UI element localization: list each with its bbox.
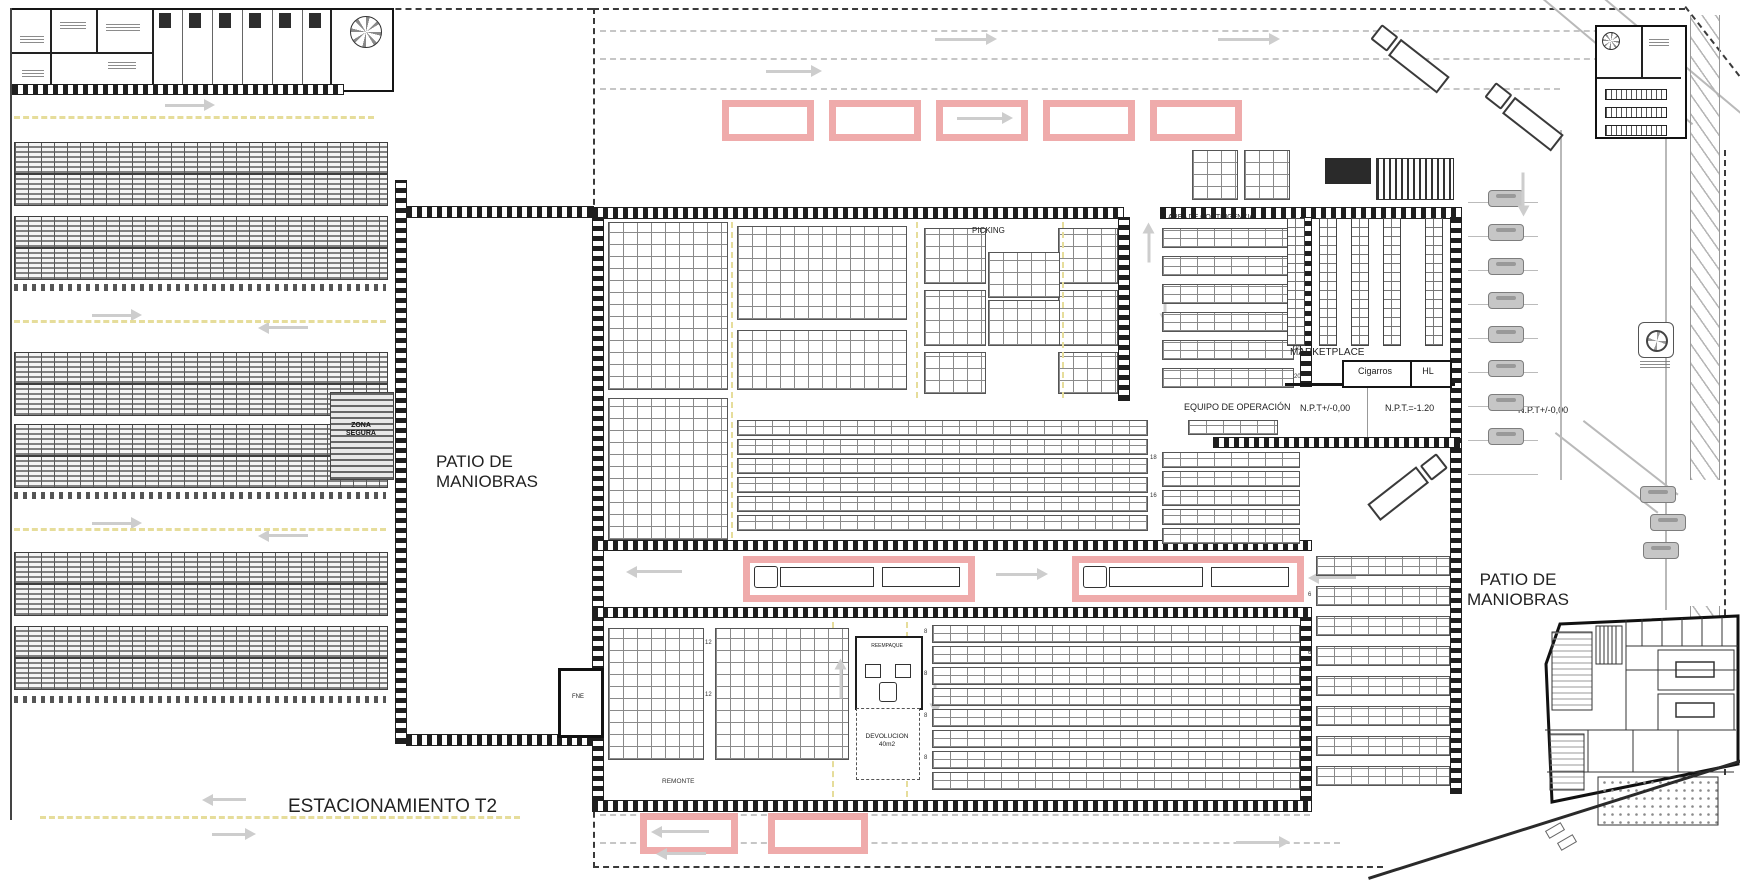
truck-bay-divider xyxy=(212,10,213,90)
fan-icon xyxy=(350,16,382,48)
lane-arrow-left xyxy=(268,534,308,537)
car-icon xyxy=(1488,326,1524,343)
picking-divider-wall xyxy=(1118,217,1130,401)
highlighted-truck-bay xyxy=(936,100,1028,141)
lane-arrow-right xyxy=(1218,38,1270,41)
yard-rack xyxy=(1244,150,1290,200)
cigarros-label: Cigarros xyxy=(1344,366,1406,377)
rack-capacity: 20 xyxy=(1294,374,1301,380)
room-microtext xyxy=(106,22,140,31)
car-icon xyxy=(1640,486,1676,503)
dock-wall-hatch xyxy=(1213,437,1460,448)
rack-row xyxy=(1316,766,1450,786)
room-wall xyxy=(50,10,52,90)
parking-row xyxy=(14,174,388,206)
picking-rack xyxy=(924,228,986,284)
lane-arrow-right xyxy=(957,117,1003,120)
picking-rack xyxy=(924,352,986,394)
room-microtext xyxy=(1649,39,1669,46)
room-furniture xyxy=(879,682,897,702)
marketplace-rack xyxy=(1319,218,1337,346)
aisle-arrow-up xyxy=(840,669,843,699)
rack-row xyxy=(1162,452,1300,468)
rack-block xyxy=(608,398,728,540)
road-lane-line xyxy=(600,88,1560,90)
room-wall xyxy=(96,10,98,52)
lane-arrow-right xyxy=(165,104,205,107)
lane-marking-yellow xyxy=(14,116,374,119)
lane-marking-yellow xyxy=(14,528,386,531)
parking-row xyxy=(14,142,388,174)
bay-door xyxy=(279,13,291,28)
truck-trailer xyxy=(780,567,874,587)
picking-rack xyxy=(988,300,1060,346)
lane-arrow-right xyxy=(92,314,132,317)
car-icon xyxy=(1488,224,1524,241)
truck-bay-divider xyxy=(242,10,243,90)
rack-row xyxy=(737,439,1148,455)
reempaque-label: REEMPAQUE xyxy=(858,644,916,650)
rack-row xyxy=(1162,490,1300,506)
rack-block xyxy=(737,226,907,320)
aisle-marking-yellow xyxy=(1062,222,1064,398)
rack-capacity: 6 xyxy=(1308,592,1311,598)
highlighted-truck-bay xyxy=(1043,100,1135,141)
truck-bay-divider xyxy=(302,10,303,90)
rack-row xyxy=(737,420,1148,436)
room-wall xyxy=(1641,27,1643,77)
truck-trailer xyxy=(1109,567,1203,587)
dock-edge-hatch xyxy=(12,84,344,95)
locker-bench xyxy=(1605,107,1667,118)
bay-door xyxy=(249,13,261,28)
lane-arrow-left xyxy=(268,326,308,329)
locker-bench xyxy=(1605,89,1667,100)
lane-arrow-right xyxy=(212,833,246,836)
bay-door xyxy=(309,13,321,28)
room-wall xyxy=(12,52,152,54)
room-furniture xyxy=(895,664,911,678)
rack-row xyxy=(1162,368,1294,388)
car-icon xyxy=(1650,514,1686,531)
rack-block xyxy=(737,330,907,390)
highlighted-truck-bay xyxy=(829,100,921,141)
equipment-row xyxy=(1188,420,1278,435)
aisle-arrow-up xyxy=(1148,233,1151,263)
picking-label: PICKING xyxy=(972,226,1005,235)
lot-boundary-ticks xyxy=(395,180,407,744)
aisle-marking-yellow xyxy=(916,222,918,398)
rack-row xyxy=(1316,646,1450,666)
truck-trailer xyxy=(1367,466,1429,521)
guard-circle-icon xyxy=(1646,330,1668,352)
room-wall xyxy=(1597,77,1681,79)
picking-rack xyxy=(988,252,1060,298)
car-icon xyxy=(1488,292,1524,309)
room-wall xyxy=(330,10,332,90)
picking-rack xyxy=(1058,228,1118,284)
rack-row xyxy=(932,709,1300,727)
bay-door xyxy=(219,13,231,28)
bay-door xyxy=(189,13,201,28)
rack-capacity: 16 xyxy=(1150,493,1157,499)
bay-door xyxy=(159,13,171,28)
connector-hatch xyxy=(406,206,594,218)
rack-row xyxy=(1162,528,1300,544)
rack-row xyxy=(932,625,1300,643)
car-icon xyxy=(1488,360,1524,377)
lot-divider-hatch xyxy=(14,696,386,703)
truck-trailer xyxy=(1211,567,1289,587)
rack-row xyxy=(1316,736,1450,756)
rack-row xyxy=(737,458,1148,474)
highlighted-truck-bay xyxy=(1150,100,1242,141)
room-microtext xyxy=(20,36,44,43)
guard-microtext xyxy=(1640,360,1670,368)
lane-arrow-left xyxy=(666,852,706,855)
road-lane-line xyxy=(600,30,1660,32)
lane-arrow-right xyxy=(766,70,812,73)
lane-arrow-right xyxy=(935,38,987,41)
room-furniture xyxy=(865,664,881,678)
car-icon xyxy=(1488,190,1524,207)
contingencia-label: AREA DE CONTINGENCIA xyxy=(1168,214,1254,222)
rack-row xyxy=(932,646,1300,664)
rack-row xyxy=(1316,616,1450,636)
warehouse-wall-top xyxy=(592,207,1124,219)
equipment-cabinet xyxy=(1325,158,1371,184)
lot-edge xyxy=(10,8,12,820)
rack-row xyxy=(737,477,1148,493)
rack-row xyxy=(1162,312,1294,332)
truck-trailer xyxy=(1388,39,1450,94)
npt-level-1: N.P.T+/-0,00 xyxy=(1300,403,1350,414)
parking-row xyxy=(14,658,388,690)
rack-capacity: 8 xyxy=(924,671,927,677)
rack-row xyxy=(1162,471,1300,487)
rack-row xyxy=(1162,284,1294,304)
rack-capacity: 12 xyxy=(705,692,712,698)
rack-row xyxy=(1316,556,1450,576)
npt-level-2: N.P.T.=-1.20 xyxy=(1385,403,1434,414)
parking-row xyxy=(14,584,388,616)
car-icon xyxy=(1643,542,1679,559)
parking-row xyxy=(14,248,388,280)
rack-capacity: 12 xyxy=(705,640,712,646)
parking-row xyxy=(14,552,388,584)
rack-row xyxy=(932,730,1300,748)
lot-divider-hatch xyxy=(14,492,386,499)
rack-row xyxy=(1162,509,1300,525)
aisle-marking-yellow xyxy=(731,222,733,538)
rack-row xyxy=(1162,256,1294,276)
rack-row xyxy=(1162,228,1294,248)
room-wall xyxy=(152,10,154,90)
lot-divider-hatch xyxy=(14,284,386,291)
remonte-label: REMONTE xyxy=(662,778,695,786)
fne-dock xyxy=(558,668,604,738)
annex-wall-right xyxy=(1450,217,1462,794)
warehouse-wall-bottom xyxy=(592,800,1312,812)
lane-arrow-left xyxy=(636,570,682,573)
rack-row xyxy=(932,667,1300,685)
lane-arrow-left xyxy=(661,830,709,833)
parking-row xyxy=(14,626,388,658)
zona-segura-label: ZONA SEGURA xyxy=(330,422,392,439)
rack-row xyxy=(932,688,1300,706)
road-edge xyxy=(1560,130,1562,480)
lane-arrow-right xyxy=(996,573,1038,576)
estacionamiento-label: ESTACIONAMIENTO T2 xyxy=(288,796,497,818)
rack-block xyxy=(715,628,849,760)
office-building xyxy=(1538,612,1740,864)
locker-bench xyxy=(1605,125,1667,136)
maintenance-building xyxy=(10,8,394,92)
lane-marking-yellow xyxy=(14,320,386,323)
patio-maniobras-right-label: PATIO DE MANIOBRAS xyxy=(1462,570,1574,610)
marketplace-rack xyxy=(1351,218,1369,346)
truck-bay-divider xyxy=(182,10,183,90)
lane-arrow-left xyxy=(212,798,246,801)
highlighted-truck-dock xyxy=(1072,556,1304,602)
rack-capacity: 6 xyxy=(1308,650,1311,656)
truck-cab xyxy=(1083,566,1107,588)
locker-building xyxy=(1595,25,1687,139)
rack-row xyxy=(932,772,1300,790)
rack-row xyxy=(1316,706,1450,726)
lane-arrow-right xyxy=(92,522,132,525)
lane-arrow-down xyxy=(1522,173,1525,207)
marketplace-rack xyxy=(1425,218,1443,346)
parking-row xyxy=(14,352,388,384)
truck-trailer xyxy=(1502,97,1564,152)
marketplace-rack xyxy=(1383,218,1401,346)
yard-rack xyxy=(1192,150,1238,200)
site-boundary-bottom xyxy=(593,866,1383,868)
rack-row xyxy=(737,515,1148,531)
highlighted-truck-bay xyxy=(640,813,738,854)
parking-row xyxy=(14,216,388,248)
devolucion-label: DEVOLUCION 40m2 xyxy=(856,733,918,748)
rack-capacity: 8 xyxy=(924,755,927,761)
highlighted-truck-bay xyxy=(768,813,868,854)
warehouse-wall-right xyxy=(1300,614,1312,802)
rack-block xyxy=(608,628,704,760)
rack-capacity: 18 xyxy=(1150,455,1157,461)
picking-rack xyxy=(1058,352,1118,394)
room-microtext xyxy=(22,70,44,77)
car-icon xyxy=(1488,428,1524,445)
truck-icon xyxy=(1367,451,1448,520)
truck-bay-divider xyxy=(272,10,273,90)
rack-capacity: 8 xyxy=(924,629,927,635)
picking-rack xyxy=(1058,290,1118,346)
rack-row xyxy=(737,496,1148,512)
hl-label: HL xyxy=(1410,366,1446,377)
equipo-operacion-label: EQUIPO DE OPERACIÓN xyxy=(1184,402,1291,413)
patio-maniobras-left-label: PATIO DE MANIOBRAS xyxy=(436,452,538,492)
rack-row xyxy=(932,751,1300,769)
rack-capacity: 8 xyxy=(924,713,927,719)
rack-row xyxy=(1162,340,1294,360)
lane-arrow-left xyxy=(1318,576,1356,579)
marketplace-label: MARKETPLACE xyxy=(1290,347,1364,359)
site-plan: ZONA SEGURA ESTACIONAMIENTO T2 PATIO DE … xyxy=(0,0,1740,882)
car-icon xyxy=(1488,394,1524,411)
rack-row xyxy=(1316,586,1450,606)
room-microtext xyxy=(108,62,136,69)
highlighted-truck-bay xyxy=(722,100,814,141)
rack-row xyxy=(1316,676,1450,696)
room-microtext xyxy=(60,22,86,29)
fne-label: FNE xyxy=(560,694,596,701)
picking-rack xyxy=(924,290,986,346)
fan-icon xyxy=(1602,32,1620,50)
truck-cab xyxy=(754,566,778,588)
angled-parking-chevrons xyxy=(1690,15,1720,480)
road-lane-line xyxy=(600,58,1610,60)
truck-trailer xyxy=(882,567,960,587)
marketplace-rack xyxy=(1287,218,1305,346)
dock-leveler-strip xyxy=(1376,158,1454,200)
warehouse-wall-mid xyxy=(592,607,1312,618)
rack-block xyxy=(608,222,728,390)
floor-zone-divider xyxy=(1367,388,1368,438)
highlighted-truck-dock xyxy=(743,556,975,602)
truck-icon xyxy=(1483,82,1564,151)
site-boundary-top xyxy=(593,8,1685,10)
car-icon xyxy=(1488,258,1524,275)
lane-arrow-right xyxy=(1236,841,1280,844)
